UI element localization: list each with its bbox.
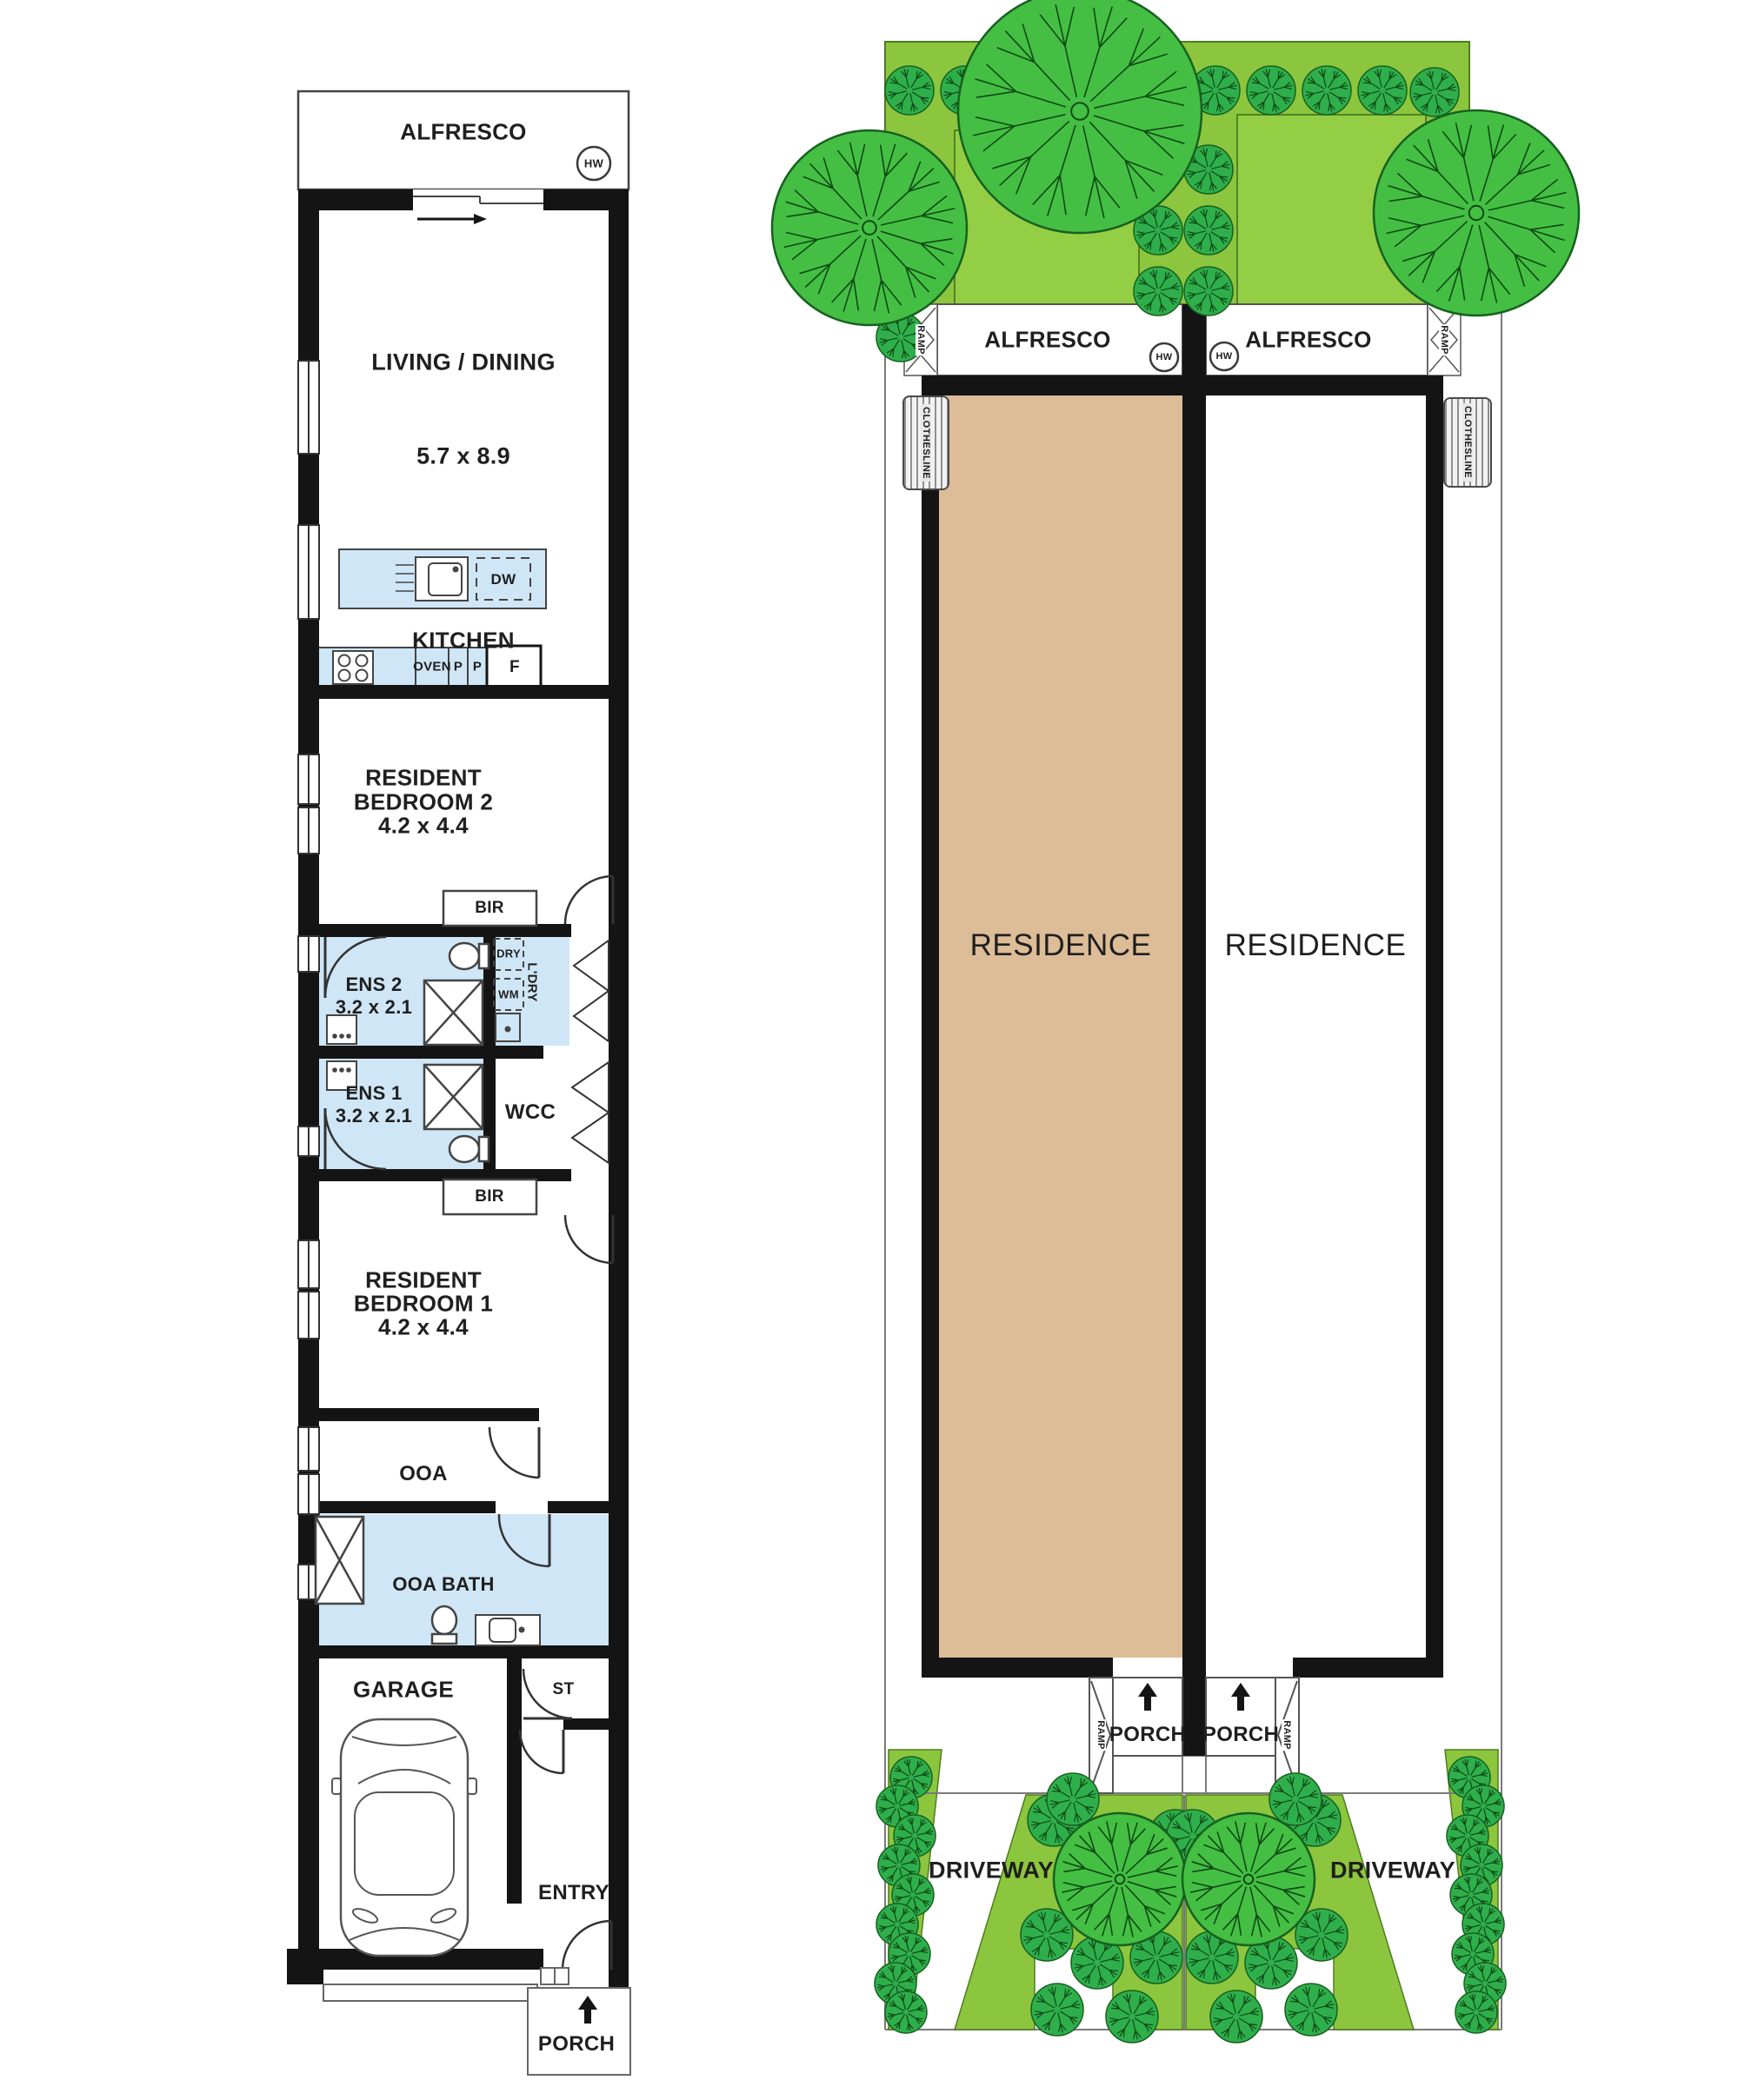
ramp-bottom-left-label: RAMP	[1095, 1719, 1106, 1751]
shrub-icon	[885, 1991, 927, 2033]
fridge-label: F	[509, 658, 520, 677]
bed1-dims-label: 4.2 x 4.4	[378, 1314, 469, 1341]
st-label: ST	[553, 1680, 575, 1699]
cooktop-icon	[333, 651, 373, 684]
pantry2-label: P	[473, 660, 482, 675]
entry-label: ENTRY	[538, 1881, 609, 1905]
ens2-dims-label: 3.2 x 2.1	[336, 996, 412, 1019]
bifold-doors	[572, 940, 609, 1163]
driveway-left-label: DRIVEWAY	[929, 1857, 1054, 1884]
dw-label: DW	[491, 571, 516, 588]
site-porch-left-label: PORCH	[1109, 1723, 1186, 1747]
shrub-icon	[1031, 1984, 1083, 2036]
hw-label: HW	[584, 157, 603, 170]
ooa-label: OOA	[399, 1462, 448, 1486]
ramp-bottom-right-label: RAMP	[1282, 1719, 1292, 1751]
shrub-icon	[1455, 1991, 1497, 2033]
bed2-line1-label: RESIDENT	[365, 765, 482, 792]
bir1-label: BIR	[475, 1187, 504, 1206]
plan-graphics	[0, 0, 1738, 2100]
pantry1-label: P	[454, 660, 463, 675]
shrub-icon	[1302, 66, 1351, 115]
clothesline-right-label: CLOTHESLINE	[1462, 403, 1473, 481]
residence-left-label: RESIDENCE	[970, 928, 1152, 963]
shrub-icon	[1134, 267, 1182, 316]
dry-label: DRY	[496, 947, 521, 960]
tree-icon	[958, 0, 1202, 233]
bir2-label: BIR	[475, 899, 504, 918]
tree-icon	[1182, 1813, 1315, 1945]
tree-icon	[1374, 110, 1579, 316]
porch-label: PORCH	[538, 2032, 615, 2057]
tree-icon	[772, 130, 967, 325]
ens1-label: ENS 1	[345, 1082, 402, 1105]
shrub-icon	[1358, 66, 1407, 115]
site-alfresco-left-label: ALFRESCO	[984, 327, 1110, 354]
garage-label: GARAGE	[353, 1677, 454, 1704]
sliding-door	[413, 189, 543, 224]
floorplan-page: ALFRESCO HW LIVING / DINING 5.7 x 8.9 DW…	[0, 0, 1738, 2100]
shrub-icon	[1184, 267, 1233, 316]
living-dining-label: LIVING / DINING	[371, 349, 556, 376]
shrub-icon	[1210, 1990, 1262, 2043]
ens1-dims-label: 3.2 x 2.1	[336, 1105, 412, 1127]
residence-right-label: RESIDENCE	[1225, 928, 1407, 963]
clothesline-right: CLOTHESLINE	[1443, 397, 1492, 488]
wm-label: WM	[498, 988, 519, 1001]
ooa-bath-label: OOA BATH	[392, 1573, 494, 1596]
shrub-icon	[1247, 66, 1295, 115]
oven-label: OVEN	[413, 660, 451, 675]
shrub-icon	[1047, 1773, 1099, 1825]
residence-left-fill	[939, 393, 1182, 1658]
site-porch-right-label: PORCH	[1202, 1723, 1279, 1747]
shrub-icon	[1410, 68, 1459, 116]
driveway-right-label: DRIVEWAY	[1330, 1857, 1455, 1884]
wcc-label: WCC	[505, 1100, 556, 1125]
ens2-label: ENS 2	[345, 974, 402, 996]
shrub-icon	[885, 66, 934, 115]
car-icon	[332, 1719, 476, 1956]
shrub-icon	[1269, 1773, 1322, 1825]
laundry-label: L'DRY	[525, 962, 540, 1001]
site-hw-left-label: HW	[1156, 352, 1173, 362]
site-hw-right-label: HW	[1216, 351, 1233, 362]
kitchen-label: KITCHEN	[412, 628, 515, 655]
clothesline-left-label: CLOTHESLINE	[921, 404, 931, 482]
site-alfresco-right-label: ALFRESCO	[1245, 327, 1371, 354]
bed2-dims-label: 4.2 x 4.4	[378, 813, 469, 840]
clothesline-left: CLOTHESLINE	[902, 395, 949, 490]
living-dims-label: 5.7 x 8.9	[416, 443, 510, 470]
shrub-icon	[1285, 1984, 1337, 2036]
ramp-top-left-label: RAMP	[916, 324, 926, 356]
alfresco-label: ALFRESCO	[400, 119, 526, 146]
shrub-icon	[1184, 206, 1233, 255]
shrub-icon	[1106, 1990, 1158, 2043]
floor-plan-graphics	[287, 91, 630, 2075]
residence-right-fill	[1206, 393, 1426, 1658]
tree-icon	[1054, 1813, 1186, 1945]
ramp-top-right-label: RAMP	[1439, 324, 1449, 356]
